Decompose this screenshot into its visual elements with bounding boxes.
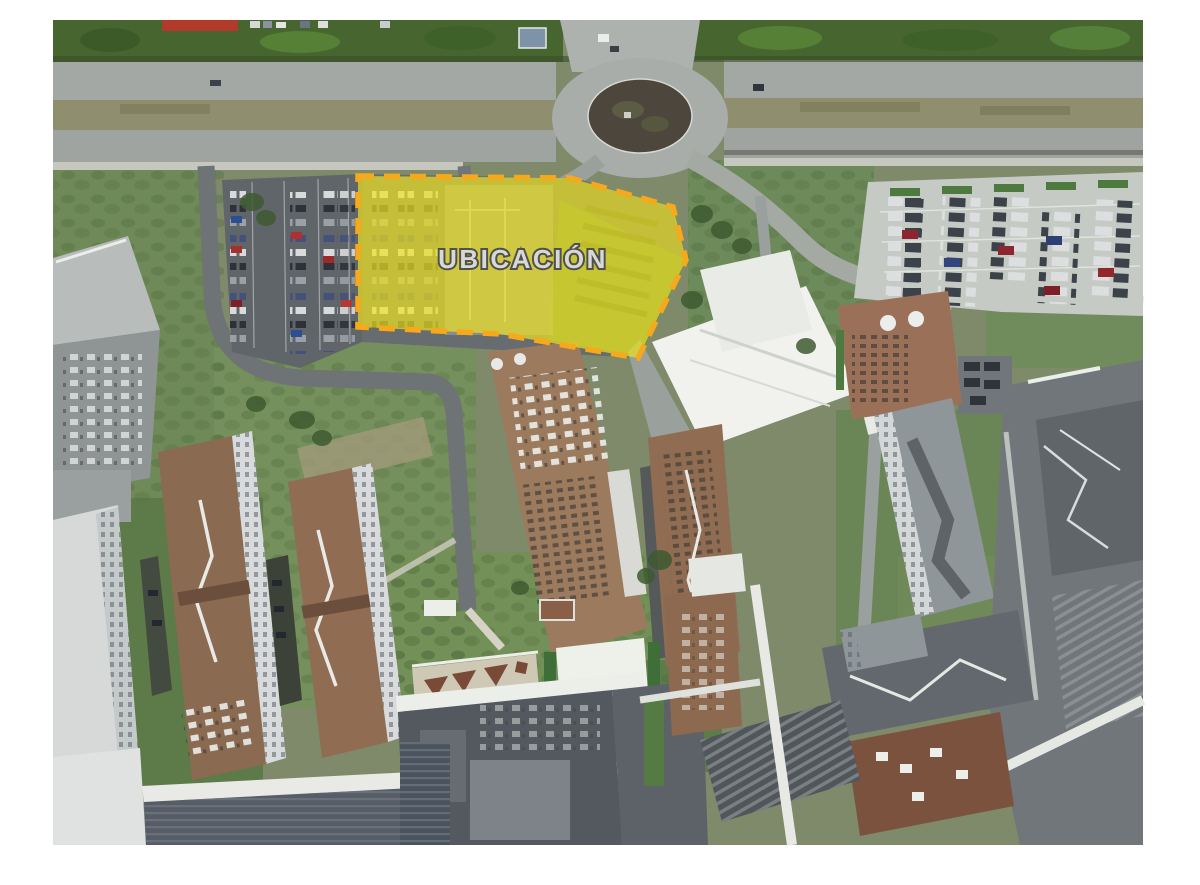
small-brown-structure <box>540 600 574 620</box>
car-on-road <box>753 84 764 91</box>
car-on-road <box>598 34 609 42</box>
blue-shed <box>519 28 546 48</box>
white-van <box>424 600 456 616</box>
highlighted-site: UBICACIÓN <box>358 176 686 358</box>
location-label: UBICACIÓN <box>438 244 608 274</box>
car-on-road <box>210 80 221 86</box>
car-on-road <box>610 46 619 52</box>
screenshot: UBICACIÓN <box>0 0 1200 885</box>
aerial-photo: UBICACIÓN <box>0 0 1200 885</box>
red-roof-building <box>162 20 238 31</box>
